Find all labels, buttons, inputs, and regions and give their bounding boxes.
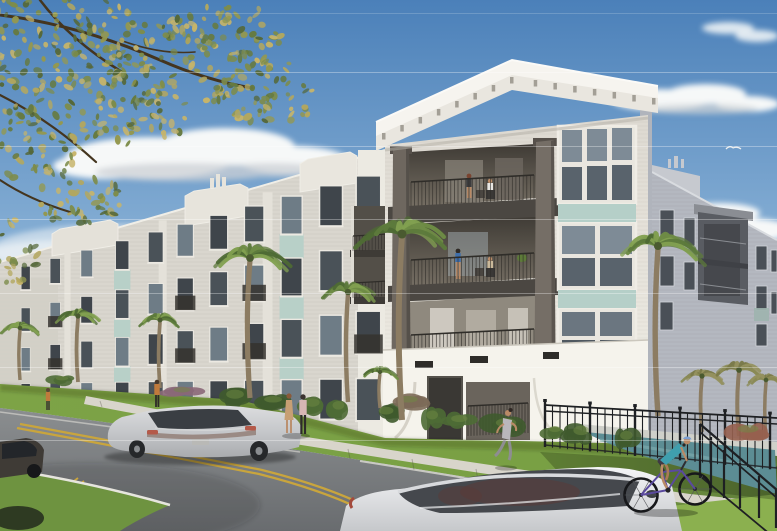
dark-car [0, 438, 44, 478]
silver-sedan [104, 406, 302, 465]
apartment-rendering [0, 0, 777, 531]
scene [0, 0, 777, 531]
tower-window-stack [558, 126, 636, 366]
